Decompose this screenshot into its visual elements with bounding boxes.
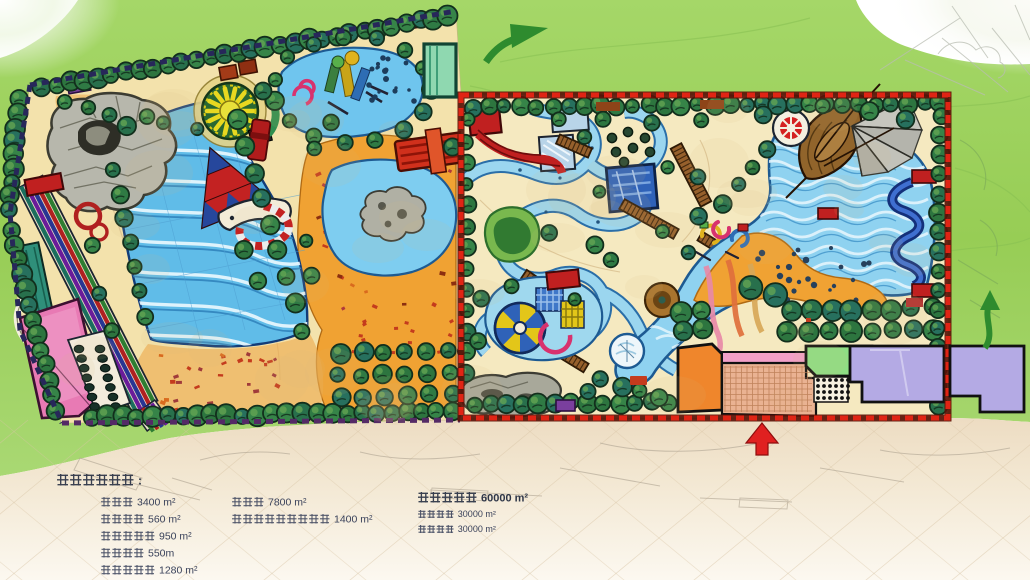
- svg-text:7800 m²: 7800 m²: [268, 497, 307, 509]
- svg-text:560 m²: 560 m²: [148, 514, 181, 526]
- svg-text:1280 m²: 1280 m²: [159, 565, 198, 577]
- svg-text:60000 m²: 60000 m²: [481, 493, 528, 505]
- svg-text:950 m²: 950 m²: [159, 531, 192, 543]
- svg-text:30000 m²: 30000 m²: [458, 524, 496, 534]
- svg-text:550m: 550m: [148, 548, 175, 560]
- svg-text:1400 m²: 1400 m²: [334, 514, 373, 526]
- svg-text::: :: [138, 474, 142, 488]
- svg-text:3400 m²: 3400 m²: [137, 497, 176, 509]
- svg-text:30000 m²: 30000 m²: [458, 509, 496, 519]
